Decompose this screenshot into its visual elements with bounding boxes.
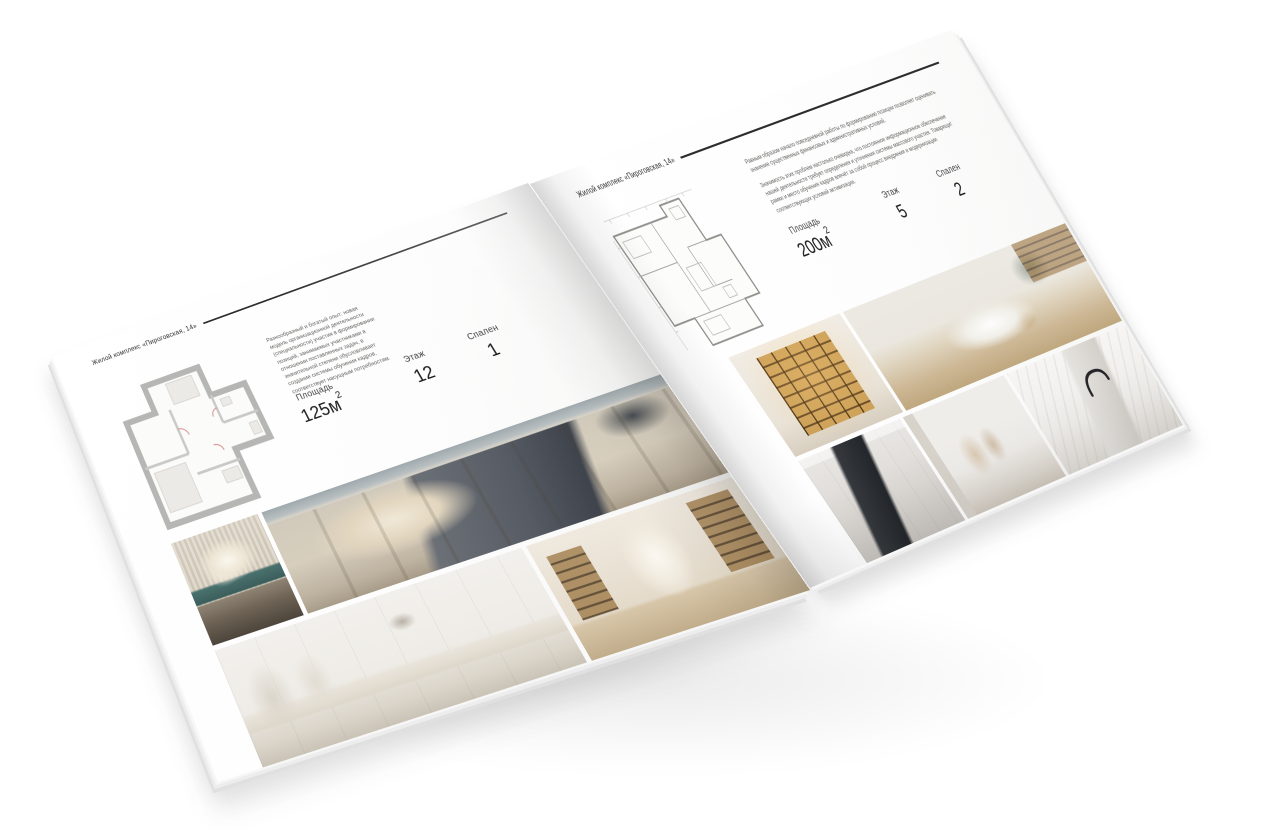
page-header-right: Жилой комплекс «Пироговская, 14» — [575, 58, 941, 199]
spec-floor: Этаж 5 — [880, 185, 917, 225]
apartment-description: Разнообразный и богатый опыт: новая моде… — [265, 299, 405, 396]
brochure-title: Жилой комплекс «Пироговская, 14» — [575, 155, 677, 199]
spec-floor-value: 5 — [889, 199, 917, 225]
spec-floor-label: Этаж — [402, 349, 427, 365]
spec-bedrooms: Спален 1 — [465, 323, 515, 365]
spec-floor: Этаж 12 — [402, 349, 441, 388]
spec-area: Площадь 200м2 — [784, 215, 840, 263]
floor-plan-left — [108, 348, 303, 534]
spec-bedrooms-value: 2 — [943, 176, 978, 205]
brochure-title: Жилой комплекс «Пироговская, 14» — [91, 322, 198, 367]
magazine-spread-scene: Жилой комплекс «Пироговская, 14» Разнооб… — [0, 0, 1280, 835]
spec-floor-label: Этаж — [880, 185, 902, 201]
spec-bedrooms-value: 1 — [473, 336, 515, 365]
faucet-icon — [1072, 357, 1118, 398]
spec-bedrooms: Спален 2 — [934, 162, 977, 205]
spec-floor-value: 12 — [409, 362, 440, 388]
